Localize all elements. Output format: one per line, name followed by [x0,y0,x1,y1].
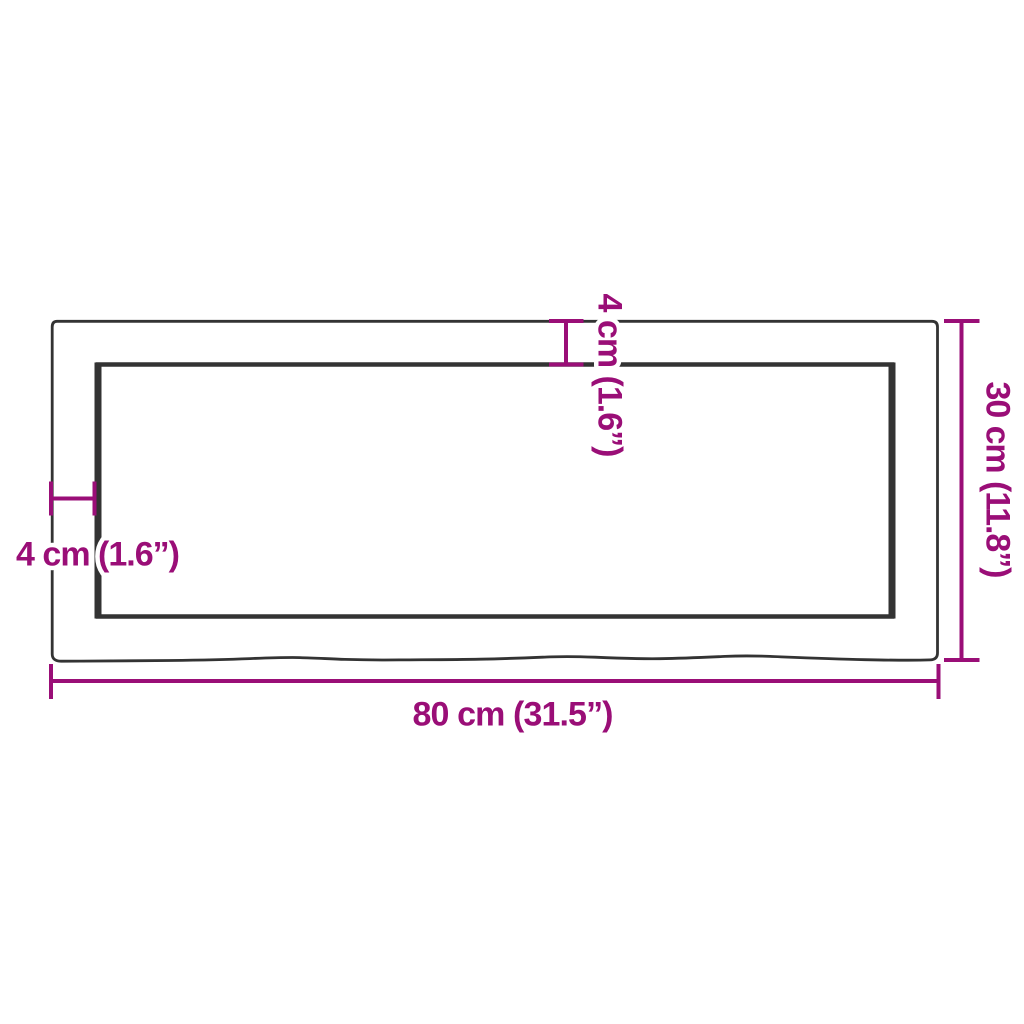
svg-text:4 cm (1.6”): 4 cm (1.6”) [16,536,180,574]
svg-text:30 cm (11.8”): 30 cm (11.8”) [979,382,1017,579]
svg-text:80 cm (31.5”): 80 cm (31.5”) [413,696,614,734]
svg-text:4 cm (1.6”): 4 cm (1.6”) [591,294,629,458]
